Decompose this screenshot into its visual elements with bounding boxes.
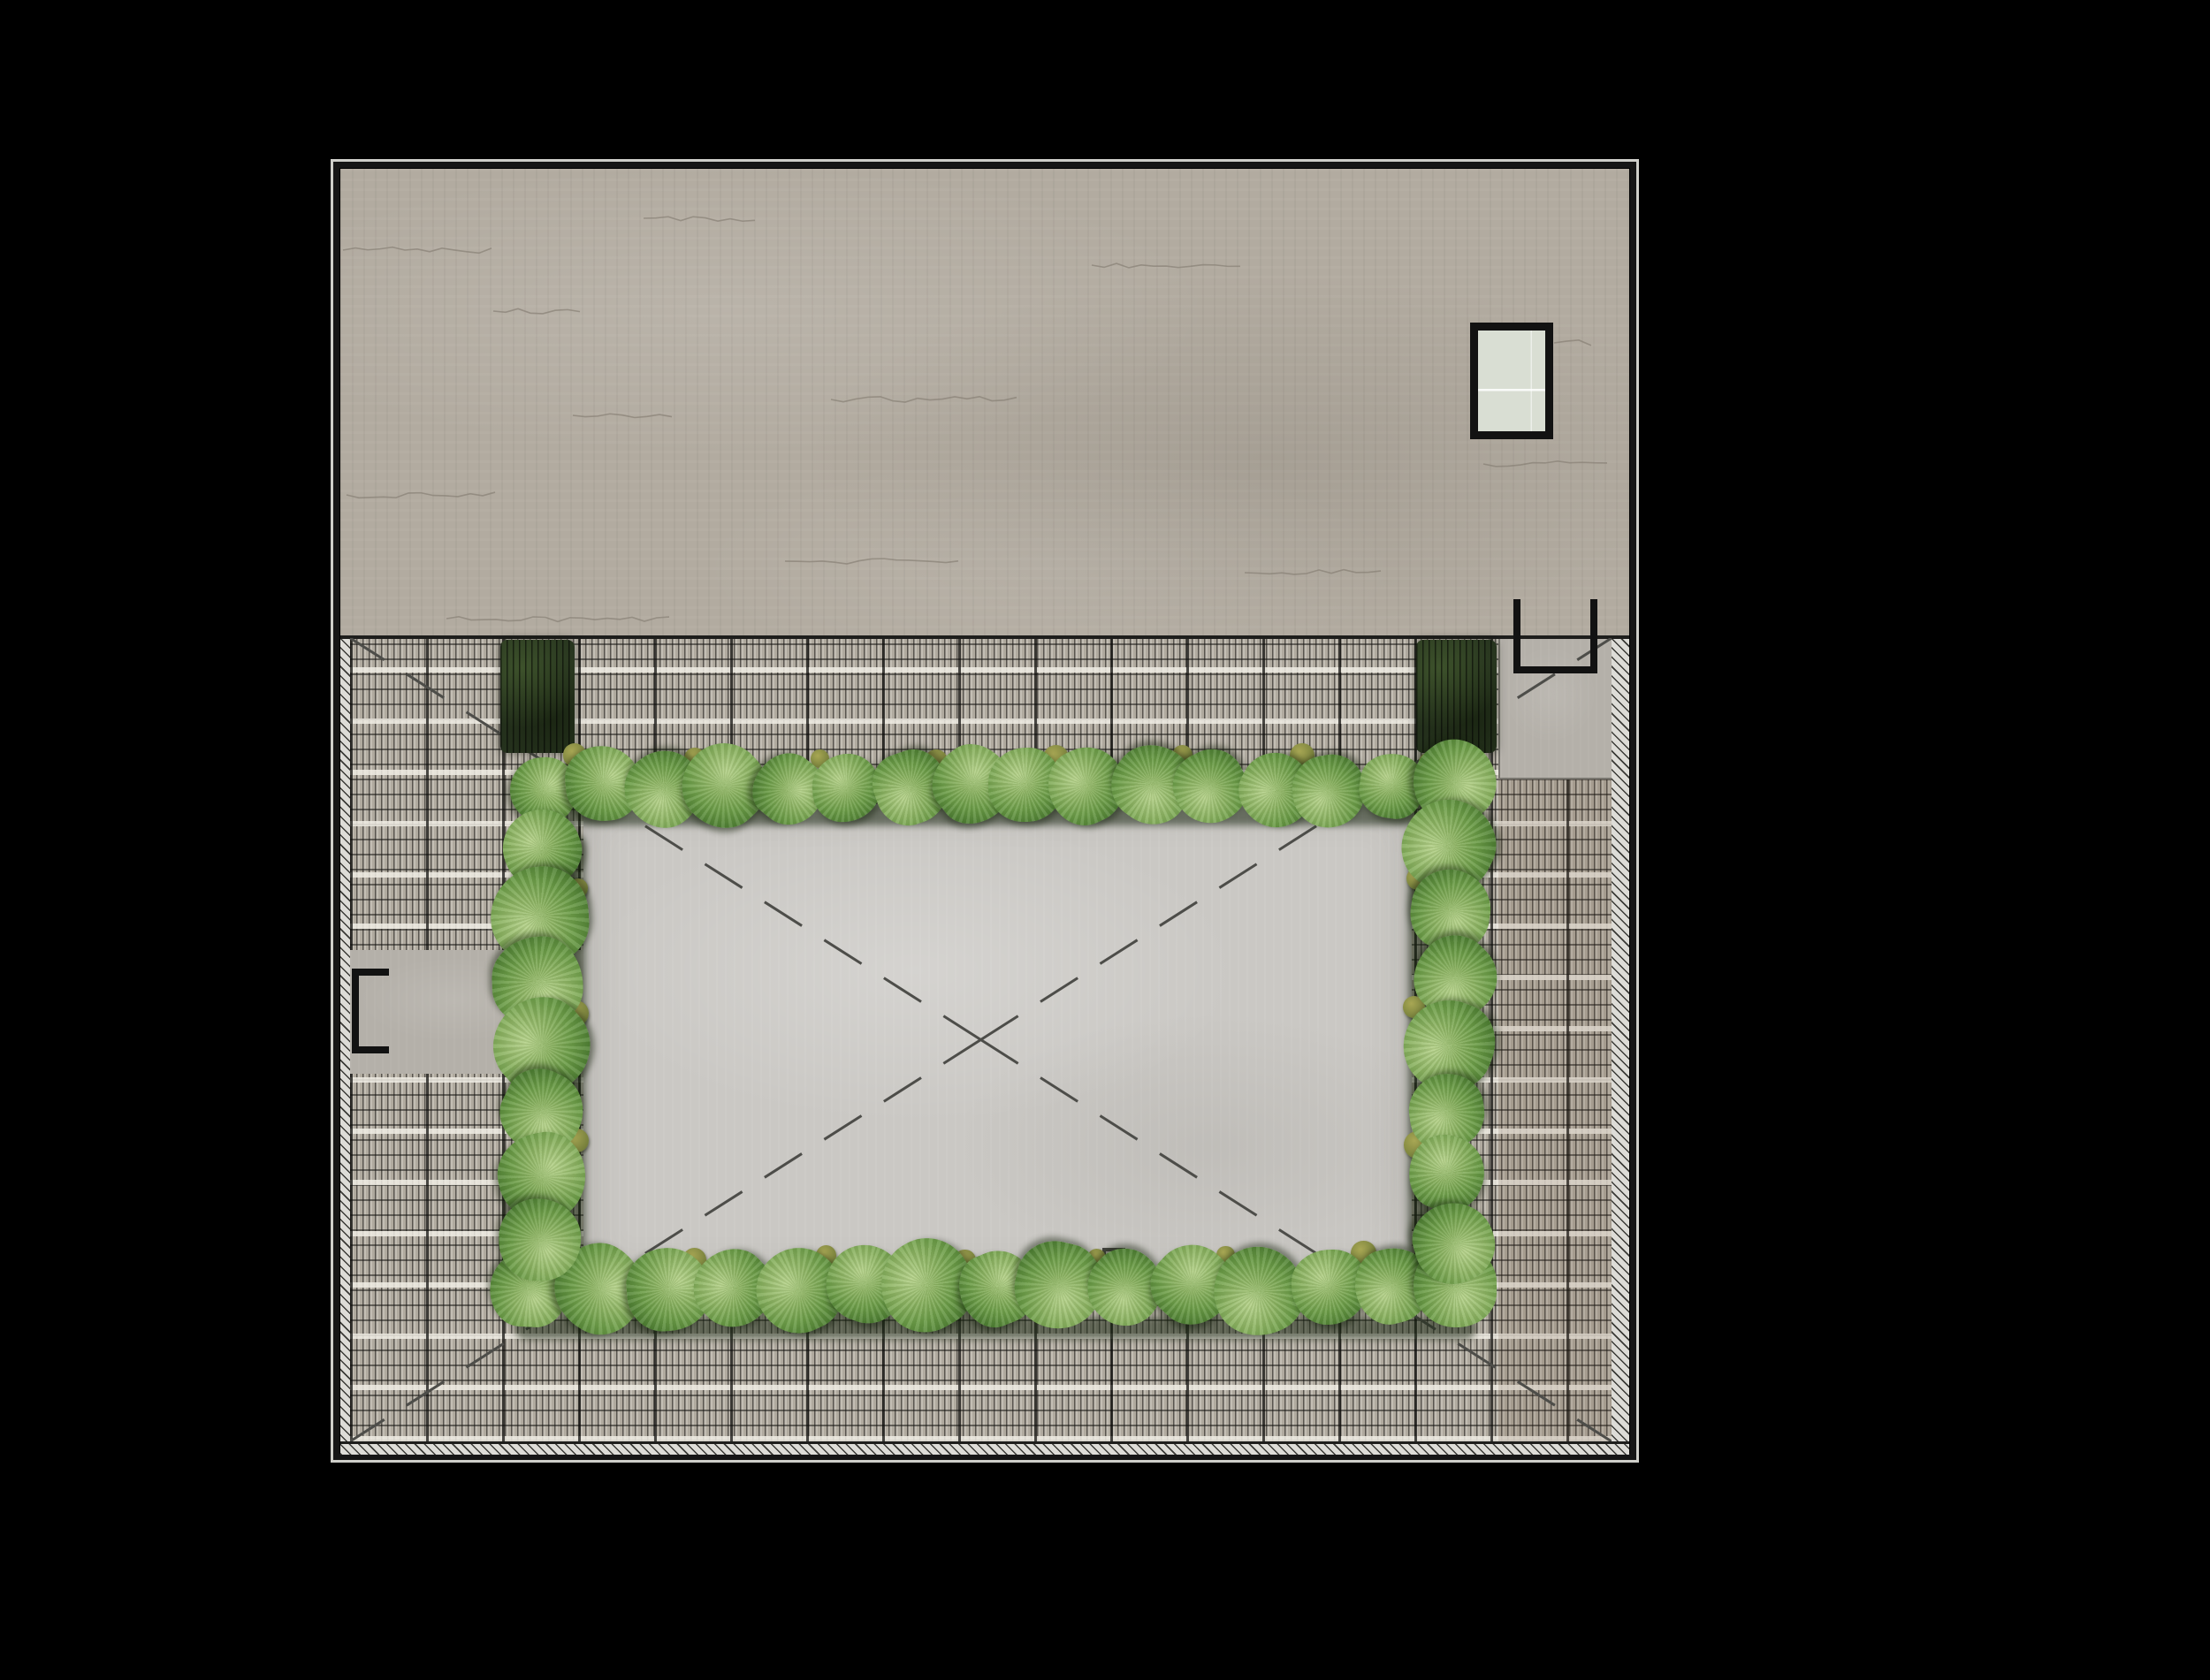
edge-hatch-east xyxy=(1612,638,1629,1455)
tree xyxy=(499,1198,581,1281)
edge-hatch-south xyxy=(340,1441,1629,1455)
west-door-recess-symbol xyxy=(352,969,389,1053)
skylight xyxy=(1470,323,1553,439)
plan-canvas xyxy=(0,0,2210,1680)
green-wall-west xyxy=(500,640,575,753)
roof-access-hatch-symbol xyxy=(1513,599,1597,673)
concrete-crack-lines xyxy=(340,169,1629,638)
green-wall-east xyxy=(1416,640,1497,753)
edge-hatch-west xyxy=(340,638,350,1455)
